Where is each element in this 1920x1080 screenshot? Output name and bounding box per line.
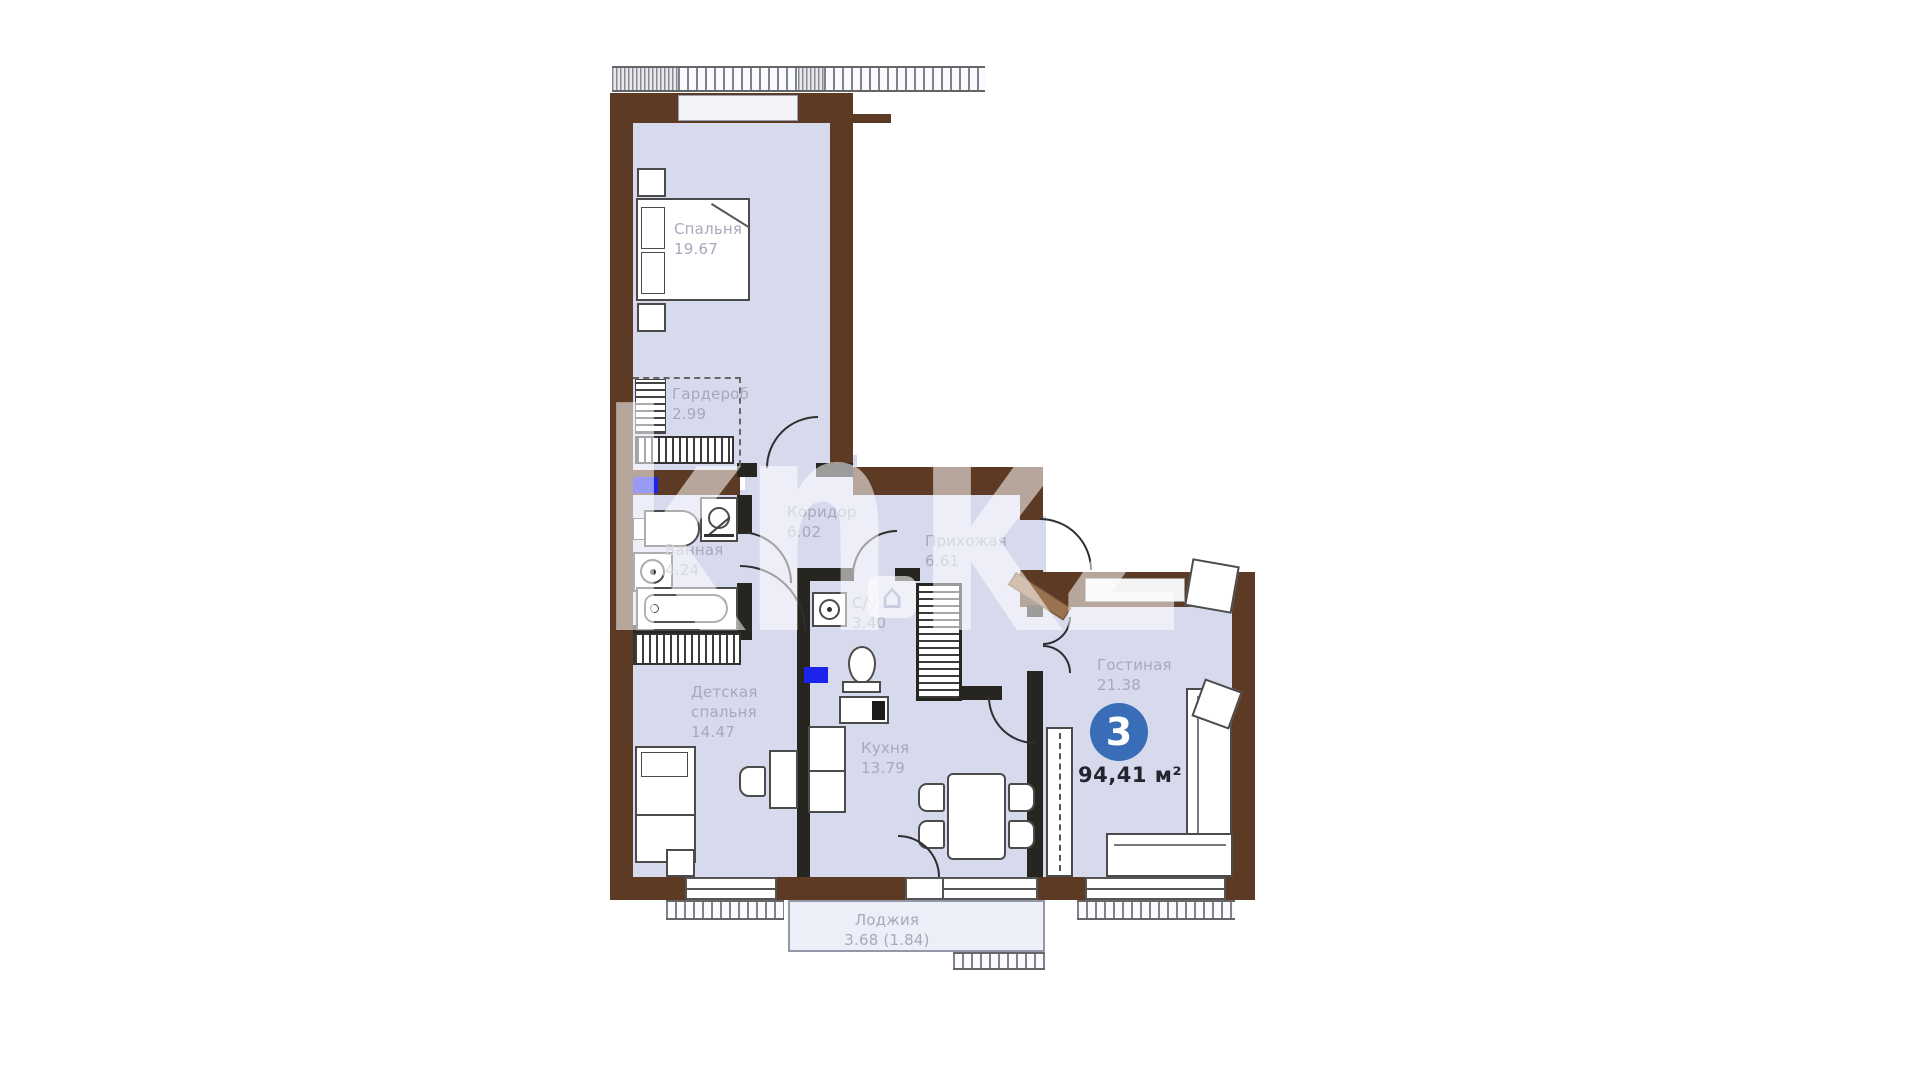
- double-door-opening: [1025, 613, 1045, 677]
- wall-left: [610, 93, 633, 900]
- cabinet-wave-line: [1059, 733, 1061, 871]
- window-hatch-bottom-kids: [666, 900, 784, 920]
- dining-chair: [1008, 783, 1035, 812]
- wall-entry-upper: [1020, 495, 1043, 520]
- partition-wc-top-right: [895, 568, 920, 581]
- room-label-kitchen: Кухня 13.79: [861, 738, 909, 778]
- wall-bedroom-right: [830, 93, 853, 467]
- room-name: Прихожая: [925, 531, 1007, 551]
- bathtub: [636, 587, 738, 631]
- window-hatch-top-2: [678, 66, 798, 92]
- window-hatch-top-4: [824, 66, 985, 92]
- partition-wc-top-left: [810, 568, 854, 581]
- room-area: 6.61: [925, 551, 1007, 571]
- wall-bottom-kids-left: [610, 877, 685, 900]
- window-hatch-top-1: [612, 66, 678, 92]
- window-hatch-top-3: [798, 66, 824, 92]
- room-area: 3.40: [852, 613, 886, 633]
- room-name: Кухня: [861, 738, 909, 758]
- room-name: Ванная: [665, 540, 724, 560]
- room-label-wardrobe: Гардероб 2.99: [672, 384, 749, 424]
- toilet-tank: [842, 681, 881, 693]
- rooms-count-badge: 3: [1090, 703, 1148, 761]
- wardrobe-rail: [635, 436, 734, 464]
- tall-cabinet: [1046, 727, 1073, 877]
- nightstand-top: [637, 168, 666, 197]
- kids-pillow: [641, 752, 688, 777]
- floor-plan: Спальня 19.67 Гардероб 2.99 Коридор 6.02…: [0, 0, 1920, 1080]
- washing-machine: [700, 497, 738, 542]
- kids-side-table: [666, 849, 695, 877]
- wall-hall-top: [853, 467, 1043, 495]
- room-area: 21.38: [1097, 675, 1172, 695]
- partition-bath-right-upper: [737, 495, 752, 534]
- dining-table: [947, 773, 1006, 860]
- pillow: [641, 252, 665, 294]
- wall-living-right: [1232, 572, 1255, 900]
- loggia-railing-hatch: [953, 952, 1045, 970]
- kids-desk: [769, 750, 798, 809]
- room-label-hallway: Прихожая 6.61: [925, 531, 1007, 571]
- room-area: 3.68 (1.84): [812, 930, 962, 950]
- partition-dd-top-stub: [1027, 605, 1043, 617]
- wall-bottom-kitchen-right: [1038, 877, 1087, 900]
- window-glass-line: [687, 888, 775, 890]
- entry-door-arc: [1040, 518, 1092, 570]
- kitchen-counter: [808, 726, 846, 813]
- room-name: Коридор: [787, 502, 857, 522]
- bathtub-drain: [650, 604, 659, 613]
- living-room-window: [1085, 877, 1226, 900]
- nightstand-bottom: [637, 303, 666, 332]
- room-area: 13.79: [861, 758, 909, 778]
- dining-chair: [918, 783, 945, 812]
- washer-panel: [704, 534, 734, 537]
- wall-bathroom-top: [610, 470, 740, 495]
- room-area: 2.99: [672, 404, 749, 424]
- wall-stub-top-right: [853, 114, 891, 123]
- balcony-door-window: [905, 877, 1038, 900]
- kids-room-window: [685, 877, 777, 900]
- wc-sink: [812, 592, 847, 627]
- wc-sink-dot: [827, 607, 832, 612]
- wall-bottom-middle: [777, 877, 907, 900]
- kids-chair: [739, 766, 766, 797]
- sofa-seat-line: [1114, 844, 1226, 846]
- counter-divider: [810, 770, 844, 772]
- room-label-corridor: Коридор 6.02: [787, 502, 857, 542]
- kids-bed-line: [637, 814, 694, 816]
- pillow: [641, 207, 665, 249]
- vent-shaft: [916, 583, 962, 701]
- heater-dot: [650, 569, 656, 575]
- room-name: Гардероб: [672, 384, 749, 404]
- room-area: 19.67: [674, 239, 742, 259]
- room-label-bedroom: Спальня 19.67: [674, 219, 742, 259]
- bedroom-window-niche: [678, 95, 798, 121]
- room-name: Лоджия: [812, 910, 962, 930]
- kids-wardrobe: [633, 633, 741, 665]
- window-glass-line: [1087, 888, 1224, 890]
- wall-bottom-living-right: [1226, 877, 1255, 900]
- partition-dd-bottom-stub: [1027, 671, 1043, 683]
- kids-bed: [635, 746, 696, 863]
- room-area: 4.24: [665, 560, 724, 580]
- riser-marker-bathroom: [633, 477, 658, 493]
- room-name: Спальня: [674, 219, 742, 239]
- room-name: Гостиная: [1097, 655, 1172, 675]
- room-area: 14.47: [691, 722, 777, 742]
- room-name: Детская спальня: [691, 682, 777, 722]
- riser-marker-wc: [804, 667, 828, 683]
- oven-block: [872, 701, 885, 720]
- room-label-living-room: Гостиная 21.38: [1097, 655, 1172, 695]
- room-label-kids-bedroom: Детская спальня 14.47: [691, 682, 777, 742]
- room-name: С/у: [852, 593, 886, 613]
- armchair: [1184, 558, 1240, 614]
- window-glass-line: [944, 888, 1036, 890]
- wardrobe-shelves: [635, 379, 666, 434]
- window-hatch-bottom-living: [1077, 900, 1235, 920]
- sofa-bottom: [1106, 833, 1233, 877]
- room-area: 6.02: [787, 522, 857, 542]
- room-label-loggia: Лоджия 3.68 (1.84): [812, 910, 962, 950]
- room-label-wc: С/у 3.40: [852, 593, 886, 633]
- room-label-bathroom: Ванная 4.24: [665, 540, 724, 580]
- stove: [839, 696, 889, 724]
- partition-bedroom-door-right: [816, 463, 853, 477]
- total-area-label: 94,41 м²: [1078, 763, 1208, 787]
- dining-chair: [1008, 820, 1035, 849]
- living-top-wall-inset: [1085, 578, 1185, 602]
